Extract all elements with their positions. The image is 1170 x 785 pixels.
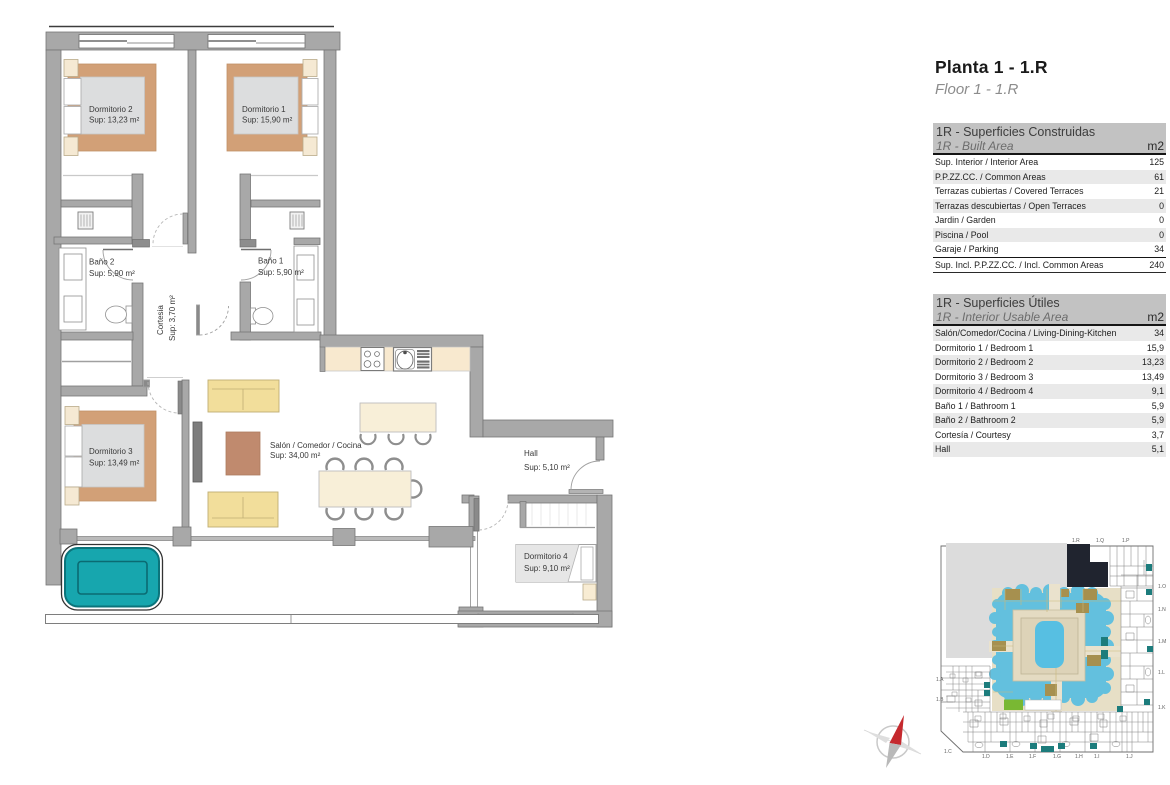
svg-text:Dormitorio 2: Dormitorio 2 [89, 105, 133, 114]
svg-text:Dormitorio 1: Dormitorio 1 [242, 105, 286, 114]
svg-text:1.O: 1.O [1158, 584, 1166, 590]
svg-text:Sup: 15,90 m²: Sup: 15,90 m² [242, 116, 293, 125]
svg-text:Sup: 13,49 m²: Sup: 13,49 m² [89, 459, 140, 468]
svg-text:1.F: 1.F [1029, 754, 1036, 760]
svg-text:1.I: 1.I [1094, 754, 1100, 760]
svg-text:1.G: 1.G [1053, 754, 1061, 760]
svg-text:Sup: 5,90 m²: Sup: 5,90 m² [89, 269, 135, 278]
svg-text:Sup: 34,00 m²: Sup: 34,00 m² [270, 451, 321, 460]
svg-text:1.R: 1.R [1072, 538, 1080, 544]
svg-text:Baño 1: Baño 1 [258, 257, 284, 266]
svg-text:1.A: 1.A [936, 677, 944, 683]
svg-text:1.B: 1.B [936, 697, 944, 703]
svg-text:Hall: Hall [524, 449, 538, 458]
svg-text:Baño 2: Baño 2 [89, 258, 115, 267]
svg-text:1.P: 1.P [1122, 538, 1130, 544]
svg-text:Sup: 5,90 m²: Sup: 5,90 m² [258, 268, 304, 277]
svg-text:1.J: 1.J [1126, 754, 1133, 760]
svg-text:1.L: 1.L [1158, 670, 1165, 676]
svg-text:Sup: 13,23 m²: Sup: 13,23 m² [89, 116, 140, 125]
svg-text:Dormitorio 4: Dormitorio 4 [524, 552, 568, 561]
svg-text:1.H: 1.H [1075, 754, 1083, 760]
svg-text:1.E: 1.E [1006, 754, 1014, 760]
svg-text:Sup: 3,70 m²: Sup: 3,70 m² [168, 295, 177, 341]
svg-text:Salón / Comedor / Cocina: Salón / Comedor / Cocina [270, 441, 362, 450]
svg-text:Sup: 9,10 m²: Sup: 9,10 m² [524, 564, 570, 573]
svg-text:1.Q: 1.Q [1096, 538, 1104, 544]
svg-text:Dormitorio 3: Dormitorio 3 [89, 447, 133, 456]
svg-text:Cortesia: Cortesia [156, 305, 165, 335]
svg-text:1.M: 1.M [1158, 639, 1166, 645]
svg-text:1.C: 1.C [944, 749, 952, 755]
svg-text:Sup: 5,10 m²: Sup: 5,10 m² [524, 463, 570, 472]
svg-text:1.K: 1.K [1158, 705, 1166, 711]
svg-text:1.D: 1.D [982, 754, 990, 760]
svg-text:1.N: 1.N [1158, 607, 1166, 613]
